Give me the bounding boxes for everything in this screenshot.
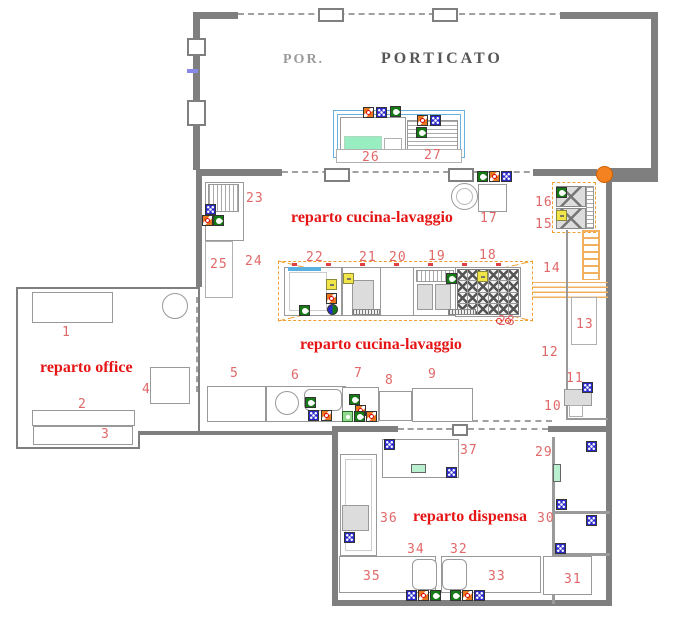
wall-pier — [432, 8, 458, 22]
unit-15-16-coil — [586, 186, 594, 229]
wall-marker — [187, 69, 198, 73]
cucina-lower-label: reparto cucina-lavaggio — [300, 336, 462, 354]
blue-utility-icon — [474, 590, 485, 601]
burner-cell — [478, 304, 487, 314]
green-utility-icon — [477, 171, 488, 182]
office-counter-3 — [33, 426, 133, 445]
opening-dashed — [398, 428, 452, 430]
green-utility-icon — [299, 305, 310, 316]
item-label-24: 24 — [245, 254, 263, 269]
item-label-35: 35 — [363, 569, 381, 584]
orange-utility-icon — [366, 411, 377, 422]
burner-cell — [468, 270, 477, 280]
item-label-15: 15 — [535, 217, 553, 232]
blue-utility-icon — [430, 115, 441, 126]
burner-cell — [489, 270, 498, 280]
wall-pier — [318, 8, 344, 22]
porticato-ghost-label: POR. — [283, 52, 324, 68]
burner-cell — [489, 281, 498, 291]
item-label-10: 10 — [544, 399, 562, 414]
wall — [651, 12, 658, 182]
burner-cell — [458, 270, 467, 280]
item-label-18: 18 — [479, 248, 497, 263]
item-label-14: 14 — [543, 261, 561, 276]
wall — [332, 426, 338, 606]
item-label-21: 21 — [359, 250, 377, 265]
green-utility-icon — [213, 215, 224, 226]
office-opening-dashed — [196, 297, 198, 392]
blue-utility-icon — [586, 441, 597, 452]
item-label-5: 5 — [230, 366, 239, 381]
item-label-17: 17 — [480, 211, 498, 226]
orange-utility-icon — [417, 115, 428, 126]
burner-cell — [509, 304, 518, 314]
wall — [332, 426, 398, 432]
blue-utility-icon — [586, 515, 597, 526]
green-utility-icon — [556, 187, 567, 198]
office-unit-4 — [150, 367, 190, 404]
item-label-22: 22 — [306, 250, 324, 265]
orange-utility-icon — [418, 590, 429, 601]
sink-34 — [412, 559, 437, 590]
round-table-inner — [456, 188, 473, 205]
unit-20-board — [352, 280, 374, 310]
burner-cell — [478, 293, 487, 303]
green-utility-icon — [354, 411, 365, 422]
counter-6-sink-round — [275, 391, 299, 415]
column — [448, 168, 474, 182]
unit-36-appliance — [342, 505, 369, 531]
item-label-4: 4 — [142, 382, 151, 397]
blue-utility-icon — [446, 467, 457, 478]
wall — [606, 176, 612, 606]
blue-utility-icon — [376, 107, 387, 118]
item-label-28: 28 — [498, 314, 516, 329]
green-utility-icon — [390, 106, 401, 117]
office-table-1 — [32, 292, 113, 323]
wall — [138, 431, 336, 435]
blue-utility-icon — [308, 410, 319, 421]
counter-9 — [412, 388, 473, 422]
opening-dashed — [468, 428, 548, 430]
burner-cell — [478, 281, 487, 291]
item-label-32: 32 — [450, 542, 468, 557]
burner-cell — [509, 293, 518, 303]
green-utility-icon — [446, 273, 457, 284]
blue-utility-icon — [344, 532, 355, 543]
burner-cell — [489, 304, 498, 314]
wall — [560, 12, 658, 19]
unit-10-base — [569, 405, 583, 417]
item-label-3: 3 — [101, 427, 110, 442]
burner-cell — [458, 293, 467, 303]
burner-cell — [468, 281, 477, 291]
blue-utility-icon — [501, 171, 512, 182]
item-label-27: 27 — [424, 148, 442, 163]
office-round-table — [162, 293, 188, 319]
burner-cell — [458, 281, 467, 291]
kitchen-floor-plan: POR. PORTICATO reparto cucina-lavaggio r… — [0, 0, 680, 619]
item-label-13: 13 — [576, 317, 594, 332]
orange-utility-icon — [202, 215, 213, 226]
wall — [196, 170, 202, 287]
wall — [533, 169, 597, 176]
office-label: reparto office — [40, 359, 133, 377]
item-label-16: 16 — [535, 195, 553, 210]
equipment-base-counter — [336, 149, 462, 163]
burner-cell — [499, 281, 508, 291]
burner-cell — [489, 293, 498, 303]
lightgreen-utility-icon — [342, 411, 353, 422]
counter-8 — [379, 391, 412, 421]
item-label-2: 2 — [78, 397, 87, 412]
burner-cell — [499, 270, 508, 280]
room-29-panel — [553, 464, 561, 482]
item-label-29: 29 — [535, 445, 553, 460]
item-label-7: 7 — [354, 366, 363, 381]
green-utility-icon — [430, 590, 441, 601]
horizontal-duct — [532, 282, 608, 298]
island-vent — [448, 309, 476, 315]
orange-utility-icon — [363, 107, 374, 118]
opening-dashed — [472, 420, 552, 422]
item-label-1: 1 — [62, 325, 71, 340]
orange-utility-icon — [321, 410, 332, 421]
yellow-utility-icon — [477, 271, 488, 282]
burner-cell — [499, 293, 508, 303]
item-label-25: 25 — [210, 257, 228, 272]
item-label-11: 11 — [566, 371, 584, 386]
green-utility-icon — [450, 590, 461, 601]
wall — [548, 426, 612, 432]
wall — [196, 12, 238, 19]
item-label-34: 34 — [407, 542, 425, 557]
item-label-31: 31 — [564, 572, 582, 587]
item-label-8: 8 — [385, 373, 394, 388]
unit-17 — [478, 184, 507, 212]
burner-cell — [509, 281, 518, 291]
wall — [552, 511, 610, 514]
vertical-duct — [582, 230, 600, 280]
orange-utility-icon — [326, 293, 337, 304]
green-utility-icon — [305, 397, 316, 408]
blue-utility-icon — [384, 439, 395, 450]
duct-junction — [596, 166, 613, 183]
green-utility-icon — [349, 394, 360, 405]
yellow-utility-icon — [556, 210, 567, 221]
blue-utility-icon — [582, 382, 593, 393]
wall — [193, 12, 200, 170]
sink-32 — [442, 559, 467, 590]
wall-pier — [187, 38, 206, 56]
column — [324, 168, 350, 182]
green-utility-icon — [416, 127, 427, 138]
yellow-utility-icon — [343, 273, 354, 284]
wall-pier — [452, 424, 468, 436]
porticato-label: PORTICATO — [381, 50, 503, 68]
blue-utility-icon — [556, 499, 567, 510]
counter-5 — [207, 386, 266, 422]
blue-utility-icon — [555, 543, 566, 554]
blue-utility-icon — [406, 590, 417, 601]
office-counter-2 — [32, 410, 135, 426]
unit-22-water-strip — [288, 267, 321, 271]
unit-19-fryer-well — [435, 284, 451, 310]
blue-utility-icon — [205, 204, 216, 215]
item-label-37: 37 — [460, 443, 478, 458]
item-label-9: 9 — [428, 367, 437, 382]
item-label-23: 23 — [246, 191, 264, 206]
item-label-19: 19 — [428, 249, 446, 264]
dispensa-label: reparto dispensa — [413, 508, 527, 526]
wall — [196, 169, 282, 176]
yellow-utility-icon — [326, 279, 337, 290]
item-label-30: 30 — [537, 511, 555, 526]
item-label-6: 6 — [291, 368, 300, 383]
orange-utility-icon — [462, 590, 473, 601]
unit-divider — [380, 268, 381, 315]
item-label-12: 12 — [541, 345, 559, 360]
orange-utility-icon — [489, 171, 500, 182]
table-37-display — [411, 464, 426, 473]
burner-cell — [468, 293, 477, 303]
bluegreen-utility-icon — [327, 304, 338, 315]
item-label-36: 36 — [380, 511, 398, 526]
wall — [606, 168, 658, 182]
burner-cell — [499, 304, 508, 314]
item-label-20: 20 — [389, 250, 407, 265]
unit-19-fryer-well — [417, 284, 433, 310]
burner-cell — [509, 270, 518, 280]
item-label-33: 33 — [488, 569, 506, 584]
item-label-26: 26 — [362, 150, 380, 165]
wall-pier — [187, 100, 206, 126]
wall — [566, 418, 608, 420]
island-vent — [352, 309, 380, 315]
cucina-upper-label: reparto cucina-lavaggio — [291, 209, 453, 227]
